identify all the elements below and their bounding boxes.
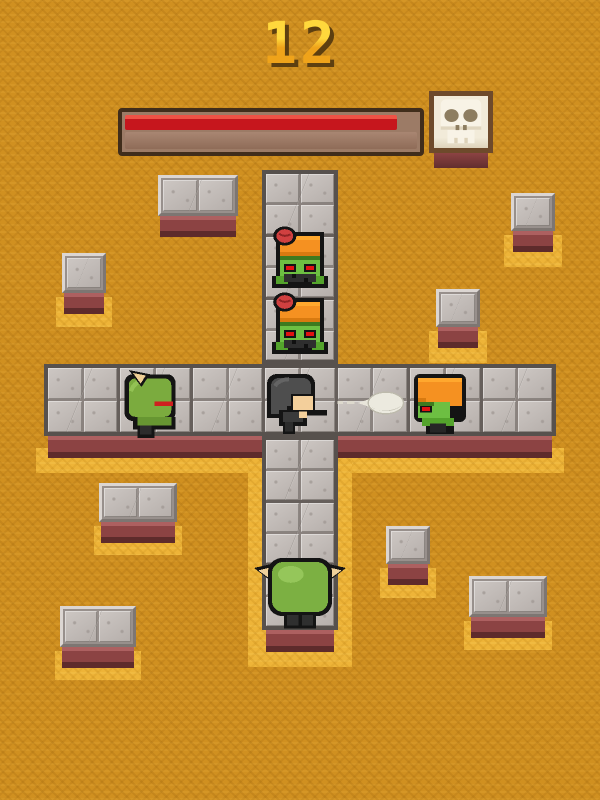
stone-tile	[99, 611, 131, 642]
health-bar-fill	[125, 115, 397, 130]
stone-tile	[163, 180, 197, 211]
stone-tile	[48, 401, 82, 432]
boss-health-bar	[118, 108, 424, 156]
stone-tile	[48, 368, 82, 399]
tile-block	[483, 368, 552, 432]
stone-tile	[67, 258, 101, 288]
stone-slab	[511, 193, 555, 252]
stone-tile	[266, 471, 299, 500]
stone-slab	[436, 289, 480, 348]
stone-tile	[483, 401, 517, 432]
stone-tile	[391, 531, 425, 559]
stone-slab	[469, 576, 547, 638]
game-screen[interactable]: 12	[0, 0, 600, 800]
stone-slab	[60, 606, 136, 668]
stone-tile	[301, 471, 334, 500]
bullet-projectile	[336, 390, 406, 416]
score-display: 12	[0, 14, 600, 72]
stone-tile	[193, 401, 227, 432]
stone-tile	[104, 488, 137, 517]
stone-tile	[518, 401, 552, 432]
stone-tile	[301, 503, 334, 532]
stone-tile	[266, 503, 299, 532]
stone-tile	[516, 198, 550, 226]
stone-tile	[199, 180, 233, 211]
tile-block	[266, 440, 334, 503]
stone-tile	[518, 368, 552, 399]
stone-tile	[139, 488, 172, 517]
stone-tile	[483, 368, 517, 399]
stone-tile	[474, 581, 507, 612]
stone-slab	[62, 253, 106, 314]
stone-slab	[99, 483, 177, 543]
stone-tile	[301, 174, 334, 203]
stone-tile	[84, 401, 118, 432]
stone-tile	[266, 440, 299, 469]
stone-tile	[65, 611, 97, 642]
skull-icon	[429, 91, 493, 153]
tile-block	[193, 368, 265, 432]
ogre-boss-bottom[interactable]	[254, 556, 346, 632]
ogre-enemy-left[interactable]	[116, 370, 184, 438]
stone-tile	[193, 368, 227, 399]
zombie-enemy-right[interactable]	[410, 370, 474, 434]
zombie-enemy-top-1[interactable]	[268, 228, 332, 296]
stone-slab	[158, 175, 238, 237]
tile-block	[48, 368, 120, 432]
health-bar-track	[125, 132, 417, 149]
stone-tile	[301, 440, 334, 469]
skull-tile-base	[434, 153, 488, 168]
zombie-enemy-top-2[interactable]	[268, 294, 332, 362]
stone-tile	[266, 174, 299, 203]
stone-tile	[441, 294, 475, 322]
stone-tile	[84, 368, 118, 399]
stone-tile	[509, 581, 542, 612]
column-base	[266, 630, 334, 652]
player-character[interactable]	[258, 370, 328, 434]
stone-slab	[386, 526, 430, 585]
